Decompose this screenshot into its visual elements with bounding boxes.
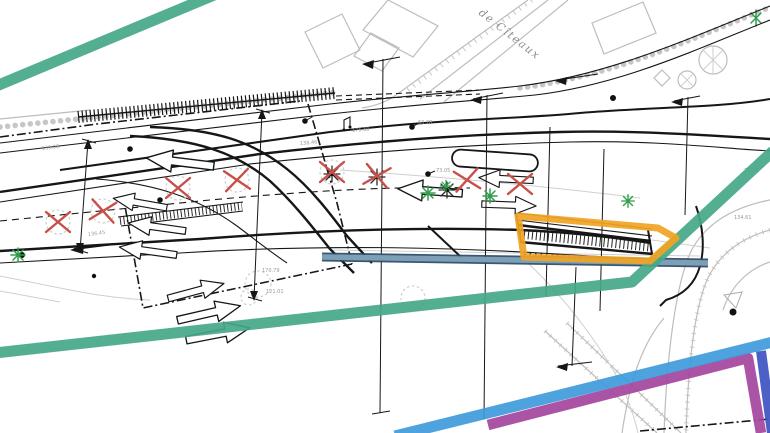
- survey-point: [730, 309, 737, 316]
- survey-point: [92, 274, 96, 278]
- new-tree-marker: [622, 195, 635, 208]
- elevation-label: 63.28: [418, 120, 432, 126]
- elevation-label: 134.61: [734, 215, 752, 221]
- survey-point: [127, 146, 133, 152]
- elevation-label: 73.05: [436, 168, 450, 174]
- elevation-label: 138.46: [300, 139, 318, 147]
- elevation-label: 170.79: [262, 268, 280, 274]
- new-tree-marker: [11, 248, 25, 262]
- tree-removal-marker: [89, 197, 116, 224]
- tree-removal-marker: [224, 167, 250, 193]
- site-plan-canvas: 139.08 136.45 138.46 176.48 63.28 73.05 …: [0, 0, 770, 433]
- new-tree-marker: [421, 186, 435, 200]
- blue-highlight-line: [395, 342, 770, 433]
- elevation-label: 139.08: [42, 144, 60, 152]
- lane-arrow: [145, 147, 215, 177]
- traffic-island-outline: [451, 149, 538, 172]
- green-highlight-line-top: [0, 0, 214, 87]
- tree-removal-marker: [46, 210, 70, 234]
- survey-point: [157, 197, 163, 203]
- annotation-overlays: [0, 0, 770, 433]
- elevation-label: 121.01: [266, 289, 284, 295]
- street-name-label: de Cîteaux: [476, 6, 543, 62]
- tree-canopy-icon: [654, 10, 761, 89]
- new-tree-marker: [440, 180, 451, 191]
- survey-point: [610, 95, 616, 101]
- new-tree-marker: [483, 189, 497, 203]
- purple-highlight-polyline: [488, 358, 761, 433]
- elevation-label: 136.45: [88, 230, 106, 238]
- tree-removal-marker: [166, 176, 190, 200]
- elevation-label: 176.48: [352, 127, 370, 134]
- scalloped-tree-line-right: [520, 8, 768, 88]
